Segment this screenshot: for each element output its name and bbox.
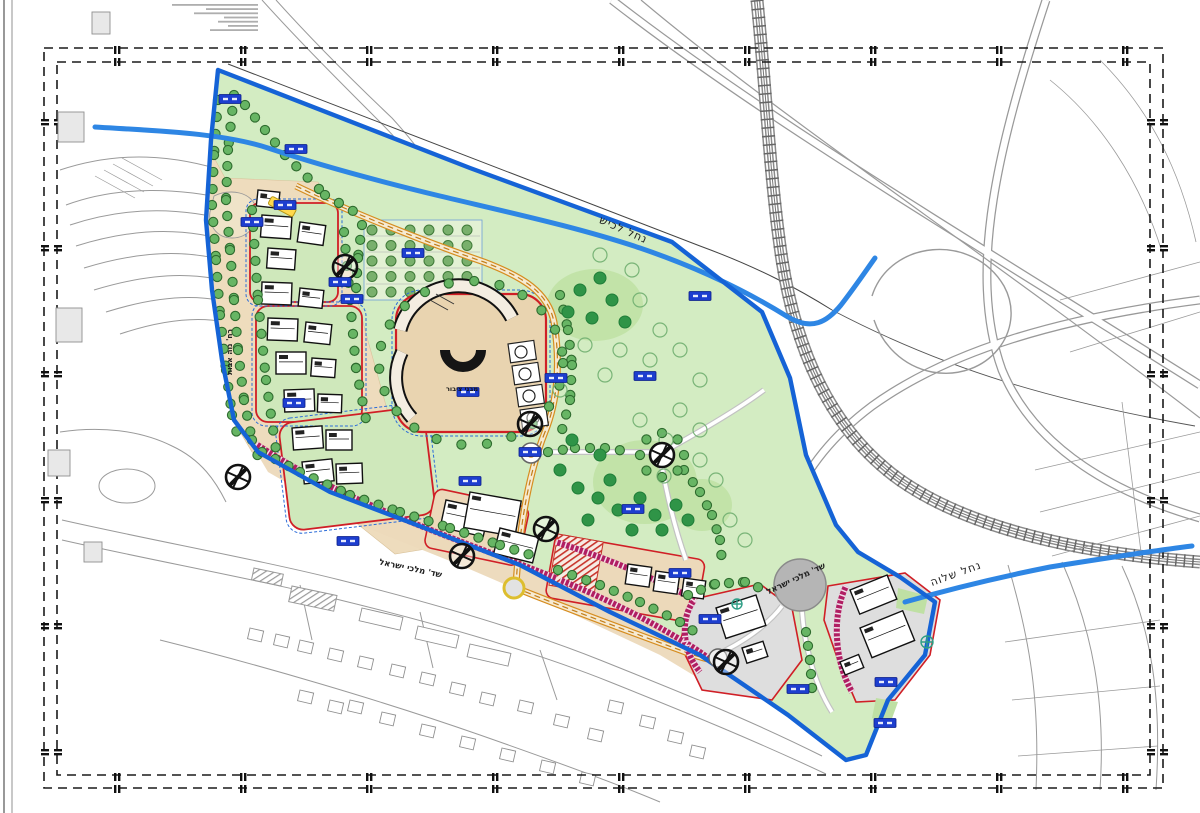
street-tree: [801, 627, 810, 636]
orchard-tree: [462, 241, 472, 251]
street-tree: [470, 276, 479, 285]
street-tree: [235, 361, 244, 370]
street-tree: [357, 220, 366, 229]
street-tree: [266, 409, 275, 418]
street-tree: [642, 466, 651, 475]
street-tree: [582, 575, 591, 584]
orchard-tree: [424, 272, 434, 282]
existing-building: [668, 730, 684, 744]
street-tree: [696, 585, 705, 594]
tick-mark: [114, 46, 116, 54]
orchard-tree: [424, 256, 434, 266]
street-tree: [712, 525, 721, 534]
planned-building: [304, 322, 332, 345]
existing-building: [450, 682, 466, 696]
street-tree: [226, 122, 235, 131]
street-tree: [460, 528, 469, 537]
street-tree: [229, 295, 238, 304]
parcel-label-box: [329, 278, 351, 287]
parcel-label-box: [241, 218, 263, 227]
planned-building: [260, 215, 291, 239]
existing-building: [554, 714, 570, 728]
street-tree: [642, 435, 651, 444]
existing-building: [420, 724, 436, 738]
street-tree: [223, 211, 232, 220]
tick-mark: [366, 46, 368, 54]
street-tree: [595, 580, 604, 589]
existing-building: [328, 700, 344, 714]
street-tree: [495, 540, 504, 549]
street-tree: [356, 235, 365, 244]
street-tree: [347, 312, 356, 321]
orchard-tree: [443, 256, 453, 266]
street-tree: [457, 440, 466, 449]
tick-mark: [870, 58, 872, 66]
street-tree: [649, 604, 658, 613]
tick-mark: [240, 46, 242, 54]
street-tree: [261, 375, 270, 384]
planned-building: [326, 430, 352, 450]
street-tree: [445, 523, 454, 532]
street-tree: [228, 106, 237, 115]
park-tree: [649, 509, 661, 521]
street-tree: [227, 261, 236, 270]
street-tree: [724, 578, 733, 587]
street-tree: [673, 466, 682, 475]
street-tree: [375, 364, 384, 373]
street-tree: [507, 432, 516, 441]
orchard-tree: [386, 272, 396, 282]
street-tree: [350, 346, 359, 355]
street-tree: [320, 190, 329, 199]
parcel-label-box: [459, 477, 481, 486]
street-malchei-israel-label-west: שד' מלכי ישראל: [378, 558, 443, 581]
existing-building: [328, 648, 344, 662]
orchard-tree: [443, 225, 453, 235]
street-tree: [543, 447, 552, 456]
parcel-label-box: [787, 685, 809, 694]
street-tree: [555, 290, 564, 299]
existing-building: [348, 700, 364, 714]
planned-building: [267, 248, 296, 270]
street-tree: [380, 386, 389, 395]
planned-building: [336, 463, 363, 484]
section-marker: [714, 650, 738, 674]
street-tree: [537, 306, 546, 315]
street-tree: [209, 217, 218, 226]
park-tree: [582, 514, 594, 526]
street-tree: [635, 597, 644, 606]
street-tree: [334, 198, 343, 207]
street-tree: [355, 380, 364, 389]
parcel-label-box: [519, 448, 541, 457]
street-tree: [225, 245, 234, 254]
street-tree: [562, 410, 571, 419]
section-marker: [333, 255, 357, 279]
orchard-tree: [367, 272, 377, 282]
street-tree: [707, 510, 716, 519]
street-tree: [269, 426, 278, 435]
street-tree: [524, 550, 533, 559]
planned-building: [261, 282, 292, 305]
title-text-block: [172, 4, 258, 31]
street-tree: [805, 655, 814, 664]
street-tree: [223, 161, 232, 170]
street-tree: [550, 325, 559, 334]
street-tree: [213, 272, 222, 281]
street-tree: [673, 435, 682, 444]
street-tree: [585, 443, 594, 452]
street-tree: [567, 360, 576, 369]
existing-building: [460, 736, 476, 750]
street-tree: [444, 279, 453, 288]
street-tree: [271, 443, 280, 452]
existing-building: [608, 700, 624, 714]
street-tree: [563, 325, 572, 334]
street-tree: [558, 358, 567, 367]
street-tree: [252, 273, 261, 282]
street-tree: [303, 173, 312, 182]
street-tree: [221, 195, 230, 204]
parcel-label-box: [274, 201, 296, 210]
planned-building: [625, 564, 652, 587]
street-tree: [565, 340, 574, 349]
street-tree: [675, 617, 684, 626]
planned-building: [311, 358, 336, 378]
street-tree: [558, 445, 567, 454]
tick-mark: [492, 46, 494, 54]
planned-building: [298, 288, 324, 308]
tick-mark: [1122, 58, 1124, 66]
parcel-label-box: [283, 399, 305, 408]
street-tree: [688, 478, 697, 487]
orchard-tree: [367, 287, 377, 297]
street-tree: [243, 411, 252, 420]
existing-building: [500, 748, 516, 762]
street-tree: [683, 590, 692, 599]
street-tree: [662, 611, 671, 620]
existing-building: [274, 634, 290, 648]
street-tree: [424, 517, 433, 526]
street-tree: [255, 312, 264, 321]
street-tree: [233, 345, 242, 354]
parcel-label-box: [402, 249, 424, 258]
planned-building: [297, 222, 326, 245]
street-tree: [264, 392, 273, 401]
street-tree: [211, 255, 220, 264]
tick-mark: [996, 46, 998, 54]
street-tree: [400, 301, 409, 310]
tick-mark: [870, 46, 872, 54]
street-tree: [258, 346, 267, 355]
street-tree: [753, 583, 762, 592]
existing-building: [420, 672, 436, 686]
tick-mark: [114, 58, 116, 66]
street-tree: [710, 579, 719, 588]
park-tree: [682, 514, 694, 526]
section-marker: [518, 412, 542, 436]
planned-building: [292, 426, 323, 450]
street-tree: [558, 347, 567, 356]
park-tree: [670, 499, 682, 511]
street-tree: [292, 162, 301, 171]
street-tree: [240, 100, 249, 109]
street-tree: [420, 287, 429, 296]
park-tree: [594, 449, 606, 461]
existing-building: [690, 745, 706, 759]
street-tree: [609, 586, 618, 595]
parcel-label-box: [669, 569, 691, 578]
street-tree: [260, 125, 269, 134]
existing-building: [248, 628, 264, 642]
street-tree: [352, 283, 361, 292]
street-tree: [210, 234, 219, 243]
street-tree: [695, 487, 704, 496]
park-tree: [592, 492, 604, 504]
tick-mark: [744, 46, 746, 54]
orchard-tree: [386, 256, 396, 266]
existing-building: [540, 760, 556, 774]
park-tree: [626, 524, 638, 536]
existing-building: [480, 692, 496, 706]
tick-mark: [996, 58, 998, 66]
tick-mark: [240, 58, 242, 66]
street-tree: [251, 256, 260, 265]
tick-mark: [618, 46, 620, 54]
roundabout-yellow: [504, 578, 524, 598]
street-tree: [231, 311, 240, 320]
street-tree: [339, 227, 348, 236]
street-tree: [715, 535, 724, 544]
park-tree: [586, 312, 598, 324]
tick-mark: [366, 58, 368, 66]
street-west-label: רח' נוה אבות: [225, 329, 234, 375]
street-tree: [568, 570, 577, 579]
street-tree: [702, 501, 711, 510]
orchard-tree: [424, 225, 434, 235]
street-tree: [376, 341, 385, 350]
street-tree: [260, 363, 269, 372]
street-tree: [224, 227, 233, 236]
street-tree: [228, 277, 237, 286]
street-tree: [510, 545, 519, 554]
parcel-label-box: [219, 95, 241, 104]
street-tree: [257, 329, 266, 338]
street-tree: [341, 244, 350, 253]
street-tree: [270, 138, 279, 147]
existing-building: [298, 690, 314, 704]
plan-sheet: נחל לכיש נחל שלוה שד' מלכי ישראל שד' מלכ…: [0, 0, 1200, 813]
tick-mark: [492, 58, 494, 66]
orchard-tree: [386, 287, 396, 297]
park-tree: [619, 316, 631, 328]
parcel-label-box: [337, 537, 359, 546]
street-tree: [558, 424, 567, 433]
street-tree: [635, 450, 644, 459]
section-marker: [450, 544, 474, 568]
park-tree: [606, 294, 618, 306]
existing-building: [298, 640, 314, 654]
street-tree: [474, 533, 483, 542]
planned-building: [317, 394, 342, 413]
orchard-tree: [386, 241, 396, 251]
existing-building: [518, 700, 534, 714]
street-tree: [495, 280, 504, 289]
parcel-label-box: [634, 372, 656, 381]
masterplan-drawing: נחל לכיש נחל שלוה שד' מלכי ישראל שד' מלכ…: [0, 0, 1200, 813]
street-tree: [247, 205, 256, 214]
street-tree: [544, 402, 553, 411]
parcel-label-box: [689, 292, 711, 301]
street-tree: [358, 397, 367, 406]
street-tree: [482, 439, 491, 448]
street-tree: [410, 512, 419, 521]
park-tree: [562, 306, 574, 318]
tick-mark: [618, 58, 620, 66]
orchard-tree: [367, 241, 377, 251]
street-tree: [410, 423, 419, 432]
park-tree: [572, 482, 584, 494]
existing-building: [358, 656, 374, 670]
parcel-label-box: [875, 678, 897, 687]
park-tree: [574, 284, 586, 296]
section-marker: [650, 443, 674, 467]
park-tree: [604, 474, 616, 486]
street-tree: [385, 320, 394, 329]
parcel-label-box: [699, 615, 721, 624]
planned-building: [267, 318, 298, 341]
orchard-tree: [367, 256, 377, 266]
street-tree: [361, 413, 370, 422]
street-tree: [348, 206, 357, 215]
street-tree: [392, 407, 401, 416]
street-tree: [615, 446, 624, 455]
parcel-label-box: [622, 505, 644, 514]
street-tree: [717, 550, 726, 559]
park-tree: [594, 272, 606, 284]
campus-label: מבני ציבור: [446, 385, 478, 393]
street-tree: [565, 395, 574, 404]
street-tree: [553, 565, 562, 574]
street-tree: [237, 377, 246, 386]
street-tree: [253, 295, 262, 304]
existing-building: [588, 728, 604, 742]
existing-building: [380, 712, 396, 726]
street-tree: [348, 329, 357, 338]
section-marker: [534, 517, 558, 541]
orchard-tree: [405, 272, 415, 282]
street-tree: [740, 577, 749, 586]
street-tree: [214, 289, 223, 298]
street-tree: [679, 450, 688, 459]
street-tree: [623, 592, 632, 601]
park-tree: [554, 464, 566, 476]
existing-building: [390, 664, 406, 678]
orchard-tree: [367, 225, 377, 235]
parcel-label-box: [285, 145, 307, 154]
parcel-label-box: [874, 719, 896, 728]
section-marker: [226, 465, 250, 489]
street-tree: [567, 375, 576, 384]
tick-mark: [744, 58, 746, 66]
street-tree: [518, 290, 527, 299]
street-tree: [250, 113, 259, 122]
street-tree: [222, 177, 231, 186]
street-tree: [432, 434, 441, 443]
parcel-label-box: [341, 295, 363, 304]
street-tree: [250, 239, 259, 248]
street-tree: [803, 641, 812, 650]
parcel-label-box: [545, 374, 567, 383]
park-tree: [634, 492, 646, 504]
park-tree: [566, 434, 578, 446]
orchard-tree: [462, 225, 472, 235]
street-tree: [806, 669, 815, 678]
street-tree: [239, 395, 248, 404]
park-tree: [656, 524, 668, 536]
existing-building: [640, 715, 656, 729]
street-tree: [223, 145, 232, 154]
existing-building: [580, 772, 596, 786]
tick-mark: [1122, 46, 1124, 54]
street-tree: [688, 626, 697, 635]
street-tree: [351, 363, 360, 372]
planned-building: [276, 352, 306, 374]
